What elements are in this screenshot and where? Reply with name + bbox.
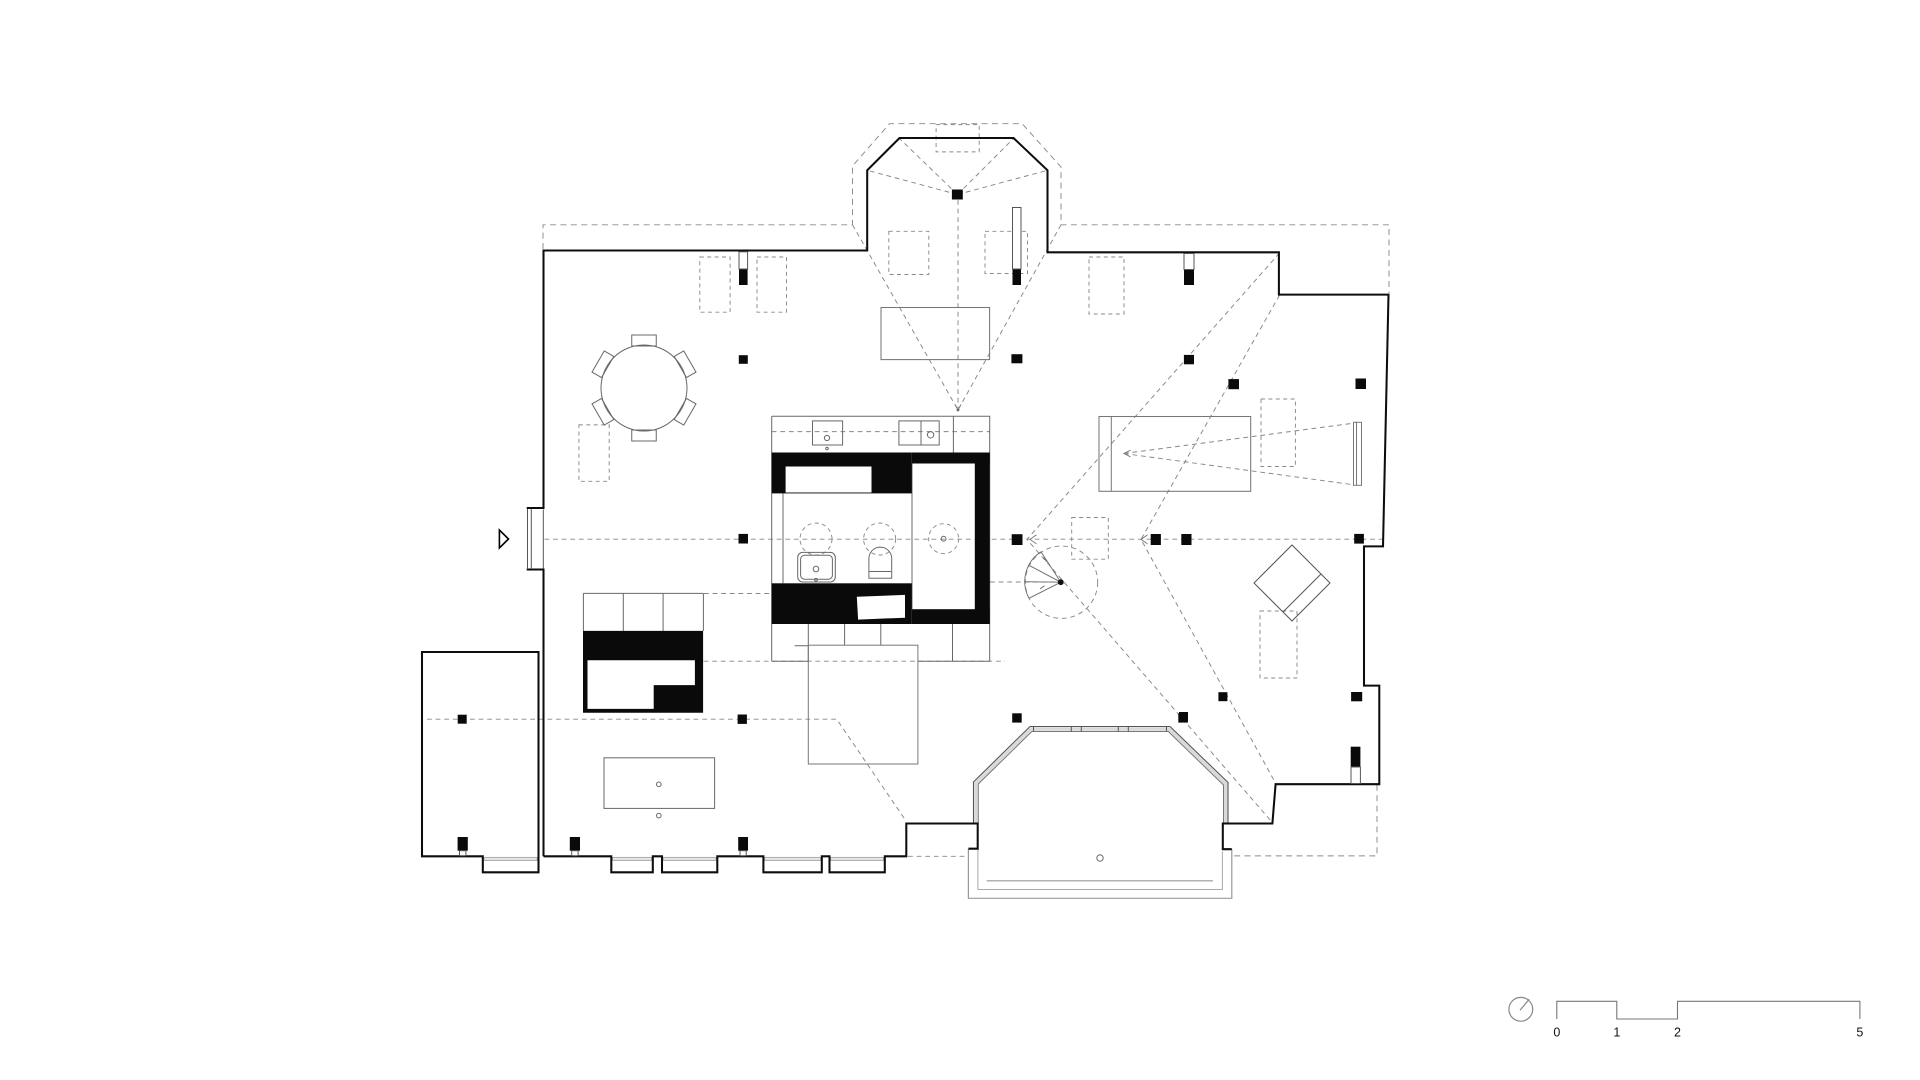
- svg-text:2: 2: [1674, 1026, 1681, 1040]
- svg-text:0: 0: [1553, 1026, 1560, 1040]
- svg-text:1: 1: [1613, 1026, 1620, 1040]
- svg-text:5: 5: [1856, 1026, 1863, 1040]
